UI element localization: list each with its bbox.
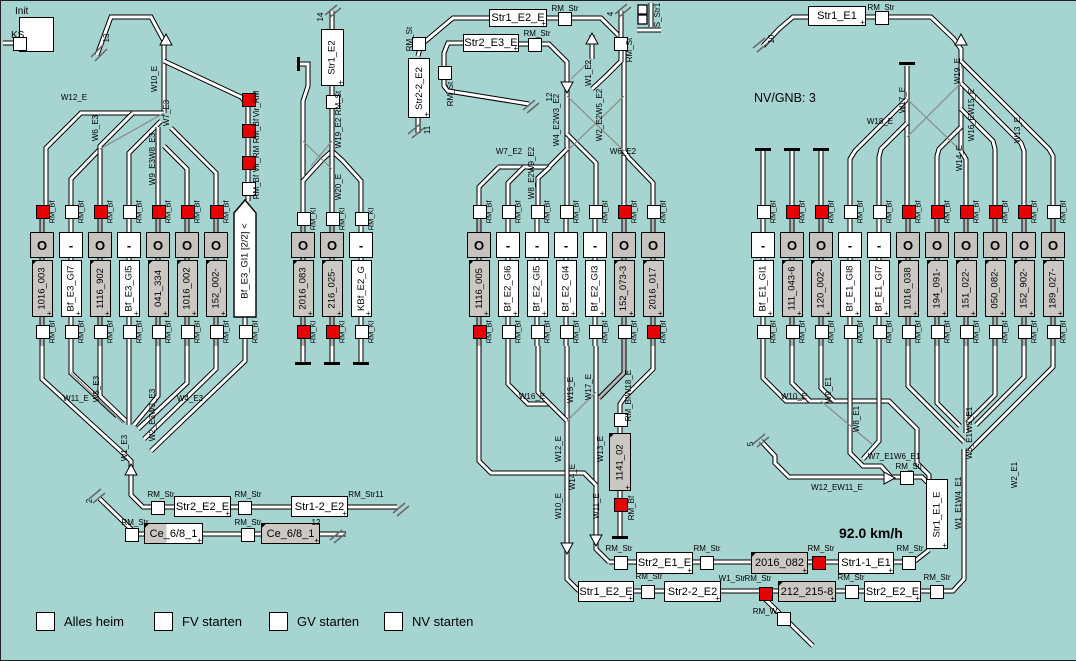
route-box[interactable]: Str2_E3_E+ [463,34,519,52]
track-label: 050_082- [990,268,1001,308]
track-label: 1016_038 [903,267,914,309]
occupancy-indicator[interactable] [930,585,944,599]
occupancy-indicator[interactable] [528,38,542,52]
switch-label: RM_Str [744,575,771,583]
switch-label: RM_Str [693,545,720,553]
track-label-box[interactable]: 189_027-+◤ [1043,260,1064,317]
track-label-box[interactable]: 1116_005+◤ [469,260,490,317]
route-box[interactable]: Str2-2_E2+ [408,58,430,118]
switch-label: W8_E1 [853,406,861,432]
route-box[interactable]: Str1-1_E1+ [838,552,894,574]
rm-label: RM_Bf [914,321,922,344]
nv-gnb-status: NV/GNB: 3 [754,91,816,105]
switch-label: RM_Str [837,574,864,582]
rm-label: RM_Bf [856,201,864,224]
track-label: Bf_E2_Gl4 [561,266,572,312]
rm-label: RM_Bf [485,321,493,344]
rm-label: RM_Bf [630,201,638,224]
switch-label: W17_E [899,87,907,113]
rm-label: RM_Bf [251,321,259,344]
rm-label: RM_Bf [798,201,806,224]
track-label: Bf_E1_Gl1 [758,266,769,312]
switch-label: W4_E3 [177,395,203,403]
route-box-label: 212_215-8 [781,586,834,598]
rm-label: RM_Bf [135,201,143,224]
signal-box[interactable]: O [30,232,54,258]
route-box[interactable]: Str2_E2_E+ [864,581,921,602]
switch-label: W14_E [956,145,964,171]
track-label-box[interactable]: Bf_E1_Gl7+ [869,260,890,317]
track-label-box[interactable]: Bf_E2_Gl5+ [527,260,548,317]
track-control-panel: Init KS NV/GNB: 3 92.0 km/h RM_BfO1016_0… [0,0,1076,661]
rm-label: RM_Bf [601,201,609,224]
route-box[interactable]: Ce_6/8_1+◤ [144,523,203,544]
track-label: Bf_E3_Gl5 [124,266,135,312]
track-label: 216_025- [327,268,338,308]
button-label: FV starten [182,614,242,629]
track-label-box[interactable]: 152_073-3+◤ [614,260,635,317]
route-box[interactable]: Str2_E2_E+ [174,496,231,517]
rm-label: RM_Bf [514,201,522,224]
button-label: NV starten [412,614,473,629]
signal-box[interactable]: O [320,232,344,258]
switch-label: RM_St [626,38,634,62]
rm-label: RM_Bf [1001,201,1009,224]
route-box-label: Ce_6/8_1 [267,528,315,540]
rm-label: RM_Bf [135,321,143,344]
switch-label: W20_E [335,174,343,200]
switch-label: RM_Str [867,4,894,12]
switch-label: RM_Str [896,545,923,553]
checkbox-icon[interactable] [384,612,403,631]
track-label-box[interactable]: 151_022-+◤ [956,260,977,317]
route-box[interactable]: Str2_E1_E+ [636,552,693,574]
rm-label: RM_Bf [972,321,980,344]
switch-label: RM_Str [605,545,632,553]
rm-label: RM_Bf [1059,321,1067,344]
occupancy-indicator[interactable] [875,11,889,25]
rm-label: RM_Bf [1001,321,1009,344]
rm-label: RM_Bf [572,201,580,224]
switch-label: 2 [86,499,94,503]
rm-label: RM_Bf [943,321,951,344]
track-label-box[interactable]: Bf_E3_Gl7+ [61,260,82,317]
switch-label: 13 [103,34,111,43]
checkbox-icon[interactable] [154,612,173,631]
track-label-box[interactable]: 152_002-+◤ [206,260,227,317]
signal-box[interactable]: O [175,232,199,258]
route-box[interactable]: Str2-2_E2+ [664,581,721,602]
switch-label: W5_E3 [93,376,101,402]
route-box[interactable]: 1141_02+◤ [609,433,631,491]
rm-label: RM_Bf [798,321,806,344]
switch-label: W10_E [151,66,159,92]
rm-label: RM_Bf [1059,201,1067,224]
route-box-label: Ce_6/8_1 [150,528,198,540]
occupancy-indicator[interactable] [700,556,714,570]
track-label-box[interactable]: 2016_083+◤ [293,260,314,317]
signal-box[interactable]: - [59,232,83,258]
track-label-box[interactable]: 2016_017+◤ [643,260,664,317]
rm-label: RM_Bf [543,201,551,224]
rm-label: RM_Bf [514,321,522,344]
rm-label: RM_Bf [914,201,922,224]
rm-label: RM_Bf [543,321,551,344]
route-box[interactable]: 2016_082+◤ [751,552,808,574]
track-label: Bf_E1_Gl7 [874,266,885,312]
track-label-box[interactable]: 1016_002+◤ [177,260,198,317]
track-label: 2016_017 [648,267,659,309]
switch-label: 10 [768,35,776,44]
track-label: Bf_E2_Gl6 [503,266,514,312]
occupancy-indicator[interactable] [438,66,452,80]
switch-label: W2_E1 [1011,462,1019,488]
track-label-box[interactable]: KBf_E2_G+ [351,260,372,317]
switch-label: 11 [424,126,432,134]
button-label: Alles heim [64,614,124,629]
switch-label: W19_E [954,58,962,84]
signal-box[interactable]: O [954,232,978,258]
track-label-box[interactable]: 216_025-+◤ [322,260,343,317]
switch-label: W12_E [555,436,563,462]
rm-label: RM_Bf [885,201,893,224]
signal-box[interactable]: O [925,232,949,258]
track-label-box[interactable]: 050_082-+◤ [985,260,1006,317]
track-label: 152_073-3 [619,266,630,311]
occupancy-indicator[interactable] [900,471,914,485]
signal-box[interactable]: - [751,232,775,258]
rm-label: RM_Bf [659,321,667,344]
switch-label: RM_Str [121,519,148,527]
occupancy-indicator[interactable] [241,528,255,542]
track-label: 2016_083 [298,267,309,309]
rm-label: RM_Bf [601,321,609,344]
switch-label: W18_E [867,118,893,126]
rm-label: RM_Bf [222,201,230,224]
track-label: Bf_E1_Gl8 [845,266,856,312]
switch-label: W9_E3W8_E3 [149,133,157,185]
track-label-box[interactable]: Bf_E1_Gl1+ [753,260,774,317]
switch-label: W16_EW15_E [968,89,976,141]
rm-label: RM_Bf [164,201,172,224]
rm-label: RM_Kl [338,321,346,344]
occupancy-indicator[interactable] [641,585,655,599]
rm-label: RM_Bf [485,201,493,224]
switch-label: 4 [607,12,615,16]
route-box-label: Str2_E2_E [176,501,229,513]
rm-label: RM_Bf [885,321,893,344]
switch-label: W8_E2W9_E2 [528,147,536,199]
rm-label: RM_Kl [309,208,317,231]
track-label-box[interactable]: 120_002-+◤ [811,260,832,317]
track-label: Bf_E3_Gl1 [2/2] < [240,223,250,298]
switch-label: 5 [747,442,755,446]
switch-label: W11_E [63,395,89,403]
switch-label: W1_E2 [585,60,593,86]
command-button-alles-heim[interactable]: Alles heim [36,612,124,631]
track-label: 1016_002 [182,267,193,309]
speed-readout: 92.0 km/h [839,525,903,541]
rm-label: RM_Bf [659,201,667,224]
occupancy-indicator[interactable] [125,528,139,542]
rm-label: RM_Kl [367,208,375,231]
track-label: KBf_E2_G [356,266,367,311]
switch-label: Vir_RM [253,146,261,173]
switch-label: RM_Str [895,463,922,471]
signal-box[interactable]: - [867,232,891,258]
switch-label: RM_Bf [625,397,633,421]
switch-label: W9_E1 [825,377,833,403]
signal-box[interactable]: - [496,232,520,258]
route-box-label: Str1_E2_E [491,12,544,24]
switch-label: W17_E [585,374,593,400]
rm-label: RM_Bf [856,321,864,344]
switch-label: RM_Str [807,545,834,553]
track-label: 111_043-6 [787,266,798,310]
occupancy-indicator[interactable] [614,498,628,512]
switch-label: W5_E1W3_E1 [966,407,974,459]
switch-label: W13_E [1014,117,1022,143]
switch-label: W10_E [781,393,807,401]
rm-label: RM_Bf [572,321,580,344]
track-label: 1016_003 [37,267,48,309]
signal-box[interactable]: O [88,232,112,258]
rm-label: RM_Bf [630,321,638,344]
rm-label: RM_Bf [222,321,230,344]
switch-label: W4_E2W3_E2 [553,94,561,146]
rm-label: RM_Bf [769,321,777,344]
signal-box[interactable]: O [1012,232,1036,258]
track-label-box[interactable]: Bf_E2_Gl6+ [498,260,519,317]
ks-label: KS [11,31,24,41]
switch-label: S_Str1 [654,3,662,27]
rm-label: RM_Bf [827,321,835,344]
track-label: 1116_902 [95,268,106,309]
switch-label: W7_E2 [496,148,522,156]
switch-label: RM_Str11 [348,491,383,499]
track-label: 1116_005 [474,268,485,309]
rm-label: RM_Bf [77,321,85,344]
switch-label: W6_E2 [610,148,636,156]
occupancy-indicator[interactable] [151,501,165,515]
track-label: 189_027- [1048,268,1059,308]
track-label-box[interactable]: 041_334+◤ [148,260,169,317]
switch-label: RM_Str [551,5,578,13]
switch-label: W2_E2W5_E2 [596,89,604,141]
route-box-label: Str1-2_E2 [295,501,345,513]
route-box-label: Str2_E2_E [866,586,919,598]
rm-label: RM_Bf [943,201,951,224]
switch-label: W7_E1W6_E1 [868,453,920,461]
rm-label: RM_Bf [827,201,835,224]
route-box[interactable]: Str1_E1+ [808,6,866,26]
signal-box[interactable]: - [583,232,607,258]
signal-box[interactable]: - [525,232,549,258]
track-label: 151_022- [961,268,972,308]
route-box-label: Str1_E2 [327,40,338,74]
route-box-label: Str1-1_E1 [841,557,891,569]
track-label-box[interactable]: 111_043-6+◤ [782,260,803,317]
switch-label: W19_E2 [335,118,343,149]
rm-label: RM_Bf [193,201,201,224]
track-label: Bf_E3_Gl7 [66,266,77,312]
rm-label: RM_Bf [48,201,56,224]
track-label-box[interactable]: Bf_E1_Gl8+ [840,260,861,317]
signal-box[interactable]: - [117,232,141,258]
track-label-box[interactable]: 194_091-+◤ [927,260,948,317]
signal-box[interactable]: O [780,232,804,258]
occupancy-indicator[interactable] [558,12,572,26]
route-box[interactable]: Str1_E1_E+ [926,479,948,549]
switch-label: W16_E [519,393,545,401]
route-box-label: Str2_E3_E [464,37,517,49]
rm-label: RM_Bf [769,201,777,224]
init-label: Init [15,7,28,17]
signal-box[interactable]: - [349,232,373,258]
route-box[interactable]: Str1-2_E2+ [291,496,348,517]
signal-box[interactable]: O [467,232,491,258]
switch-label: W14_E [569,464,577,490]
route-box-label: Str1_E1_E [932,491,943,537]
route-box-label: 2016_082 [755,557,804,569]
switch-label: RM_St [335,91,343,115]
switch-label: W18_E [625,370,633,396]
track-label: Bf_E2_Gl5 [532,266,543,312]
track-label: 152_002- [211,268,222,308]
occupancy-indicator[interactable] [614,556,628,570]
switch-label: W1_E3 [121,435,129,461]
track-label: 194_091- [932,268,943,308]
checkbox-icon[interactable] [36,612,55,631]
command-button-gv-starten[interactable]: GV starten [269,612,359,631]
route-box-label: Str1_E2_E [579,586,632,598]
rm-label: RM_Bf [1030,321,1038,344]
switch-label: W7_E3 [163,100,171,126]
switch-label: RM_Str [234,519,261,527]
rm-label: RM_Bf [1030,201,1038,224]
occupancy-indicator[interactable] [759,587,773,601]
signal-box[interactable]: O [612,232,636,258]
switch-label: W13_E [597,436,605,462]
rm-label: RM_Bf [77,201,85,224]
switch-label: RM_Str [923,574,950,582]
switch-label: W6_E3 [92,115,100,141]
track-label-box[interactable]: 1016_038+◤ [898,260,919,317]
track-label-box[interactable]: 152_902-+◤ [1014,260,1035,317]
switch-label: 14 [317,13,325,22]
switch-label: Vir_RM [253,91,261,118]
switch-label: RM_St [406,27,414,51]
command-button-fv-starten[interactable]: FV starten [154,612,242,631]
track-label-box[interactable]: 1016_003+◤ [32,260,53,317]
switch-label: W11_E [593,493,601,519]
track-label-box[interactable]: Bf_E3_Gl5+ [119,260,140,317]
rm-label: RM_Bf [106,321,114,344]
route-box[interactable]: Str1_E2_E+ [489,9,547,27]
switch-label: W2_E3W3_E3 [149,389,157,441]
switch-label: W12_E [61,94,87,102]
rm-label: RM_Bf [972,201,980,224]
switch-label: W1_Str [719,575,746,583]
switch-label: W1_E1W4_E1 [955,477,963,529]
switch-label: W12_EW11_E [811,484,863,492]
signal-box[interactable]: O [146,232,170,258]
track-label: 152_902- [1019,268,1030,308]
switch-label: W15_E [567,377,575,403]
switch-label: RM_Bf [253,119,261,143]
signal-box[interactable]: O [291,232,315,258]
signal-box[interactable]: O [204,232,228,258]
track-label: 041_334 [153,270,164,307]
route-box-label: 1141_02 [615,444,626,480]
route-box[interactable]: Str1_E2_E+ [578,581,634,602]
switch-label: 12 [312,519,321,527]
switch-label: RM_Str [147,491,174,499]
command-button-nv-starten[interactable]: NV starten [384,612,473,631]
track-label: Bf_E2_Gl3 [590,266,601,312]
switch-label: RM_St [447,82,455,106]
switch-label: RM_Bf [253,175,261,199]
occupancy-indicator[interactable] [902,556,916,570]
rm-label: RM_Bf [193,321,201,344]
route-box-label: Str1_E1 [817,10,857,22]
signal-box[interactable]: O [1041,232,1065,258]
rm-label: RM_Kl [338,208,346,231]
signal-box[interactable]: - [838,232,862,258]
switch-label: W10_E [555,493,563,519]
occupancy-indicator[interactable] [812,556,826,570]
track-label-box[interactable]: 1116_902+◤ [90,260,111,317]
signal-box[interactable]: O [983,232,1007,258]
rm-label: RM_Kl [367,321,375,344]
occupancy-indicator[interactable] [845,585,859,599]
switch-label: RM_Bf [628,496,636,520]
route-box-label: Str2-2_E2 [668,586,718,598]
route-box-label: Str2_E1_E [638,557,691,569]
occupancy-indicator[interactable] [238,501,252,515]
occupancy-indicator[interactable] [777,612,791,626]
rm-label: RM_Bf [106,201,114,224]
route-box[interactable]: Str1_E2+ [321,29,344,86]
rm-label: RM_Bf [48,321,56,344]
track-label-box[interactable]: Bf_E2_Gl3+ [585,260,606,317]
button-label: GV starten [297,614,359,629]
switch-label: RM_Str [635,573,662,581]
route-box[interactable]: 212_215-8+◤ [778,581,836,602]
signal-box[interactable]: O [809,232,833,258]
switch-label: RM_W [753,608,777,616]
rm-label: RM_Kl [309,321,317,344]
signal-box[interactable]: O [641,232,665,258]
track-label: 120_002- [816,268,827,308]
track-label-box[interactable]: Bf_E2_Gl4+ [556,260,577,317]
checkbox-icon[interactable] [269,612,288,631]
rm-label: RM_Bf [164,321,172,344]
route-box-label: Str2-2_E2 [414,67,425,110]
signal-box[interactable]: O [896,232,920,258]
mini-signal-icon[interactable] [638,5,647,24]
switch-label: RM_Str [523,30,550,38]
signal-box[interactable]: - [554,232,578,258]
switch-label: RM_Str [234,491,261,499]
